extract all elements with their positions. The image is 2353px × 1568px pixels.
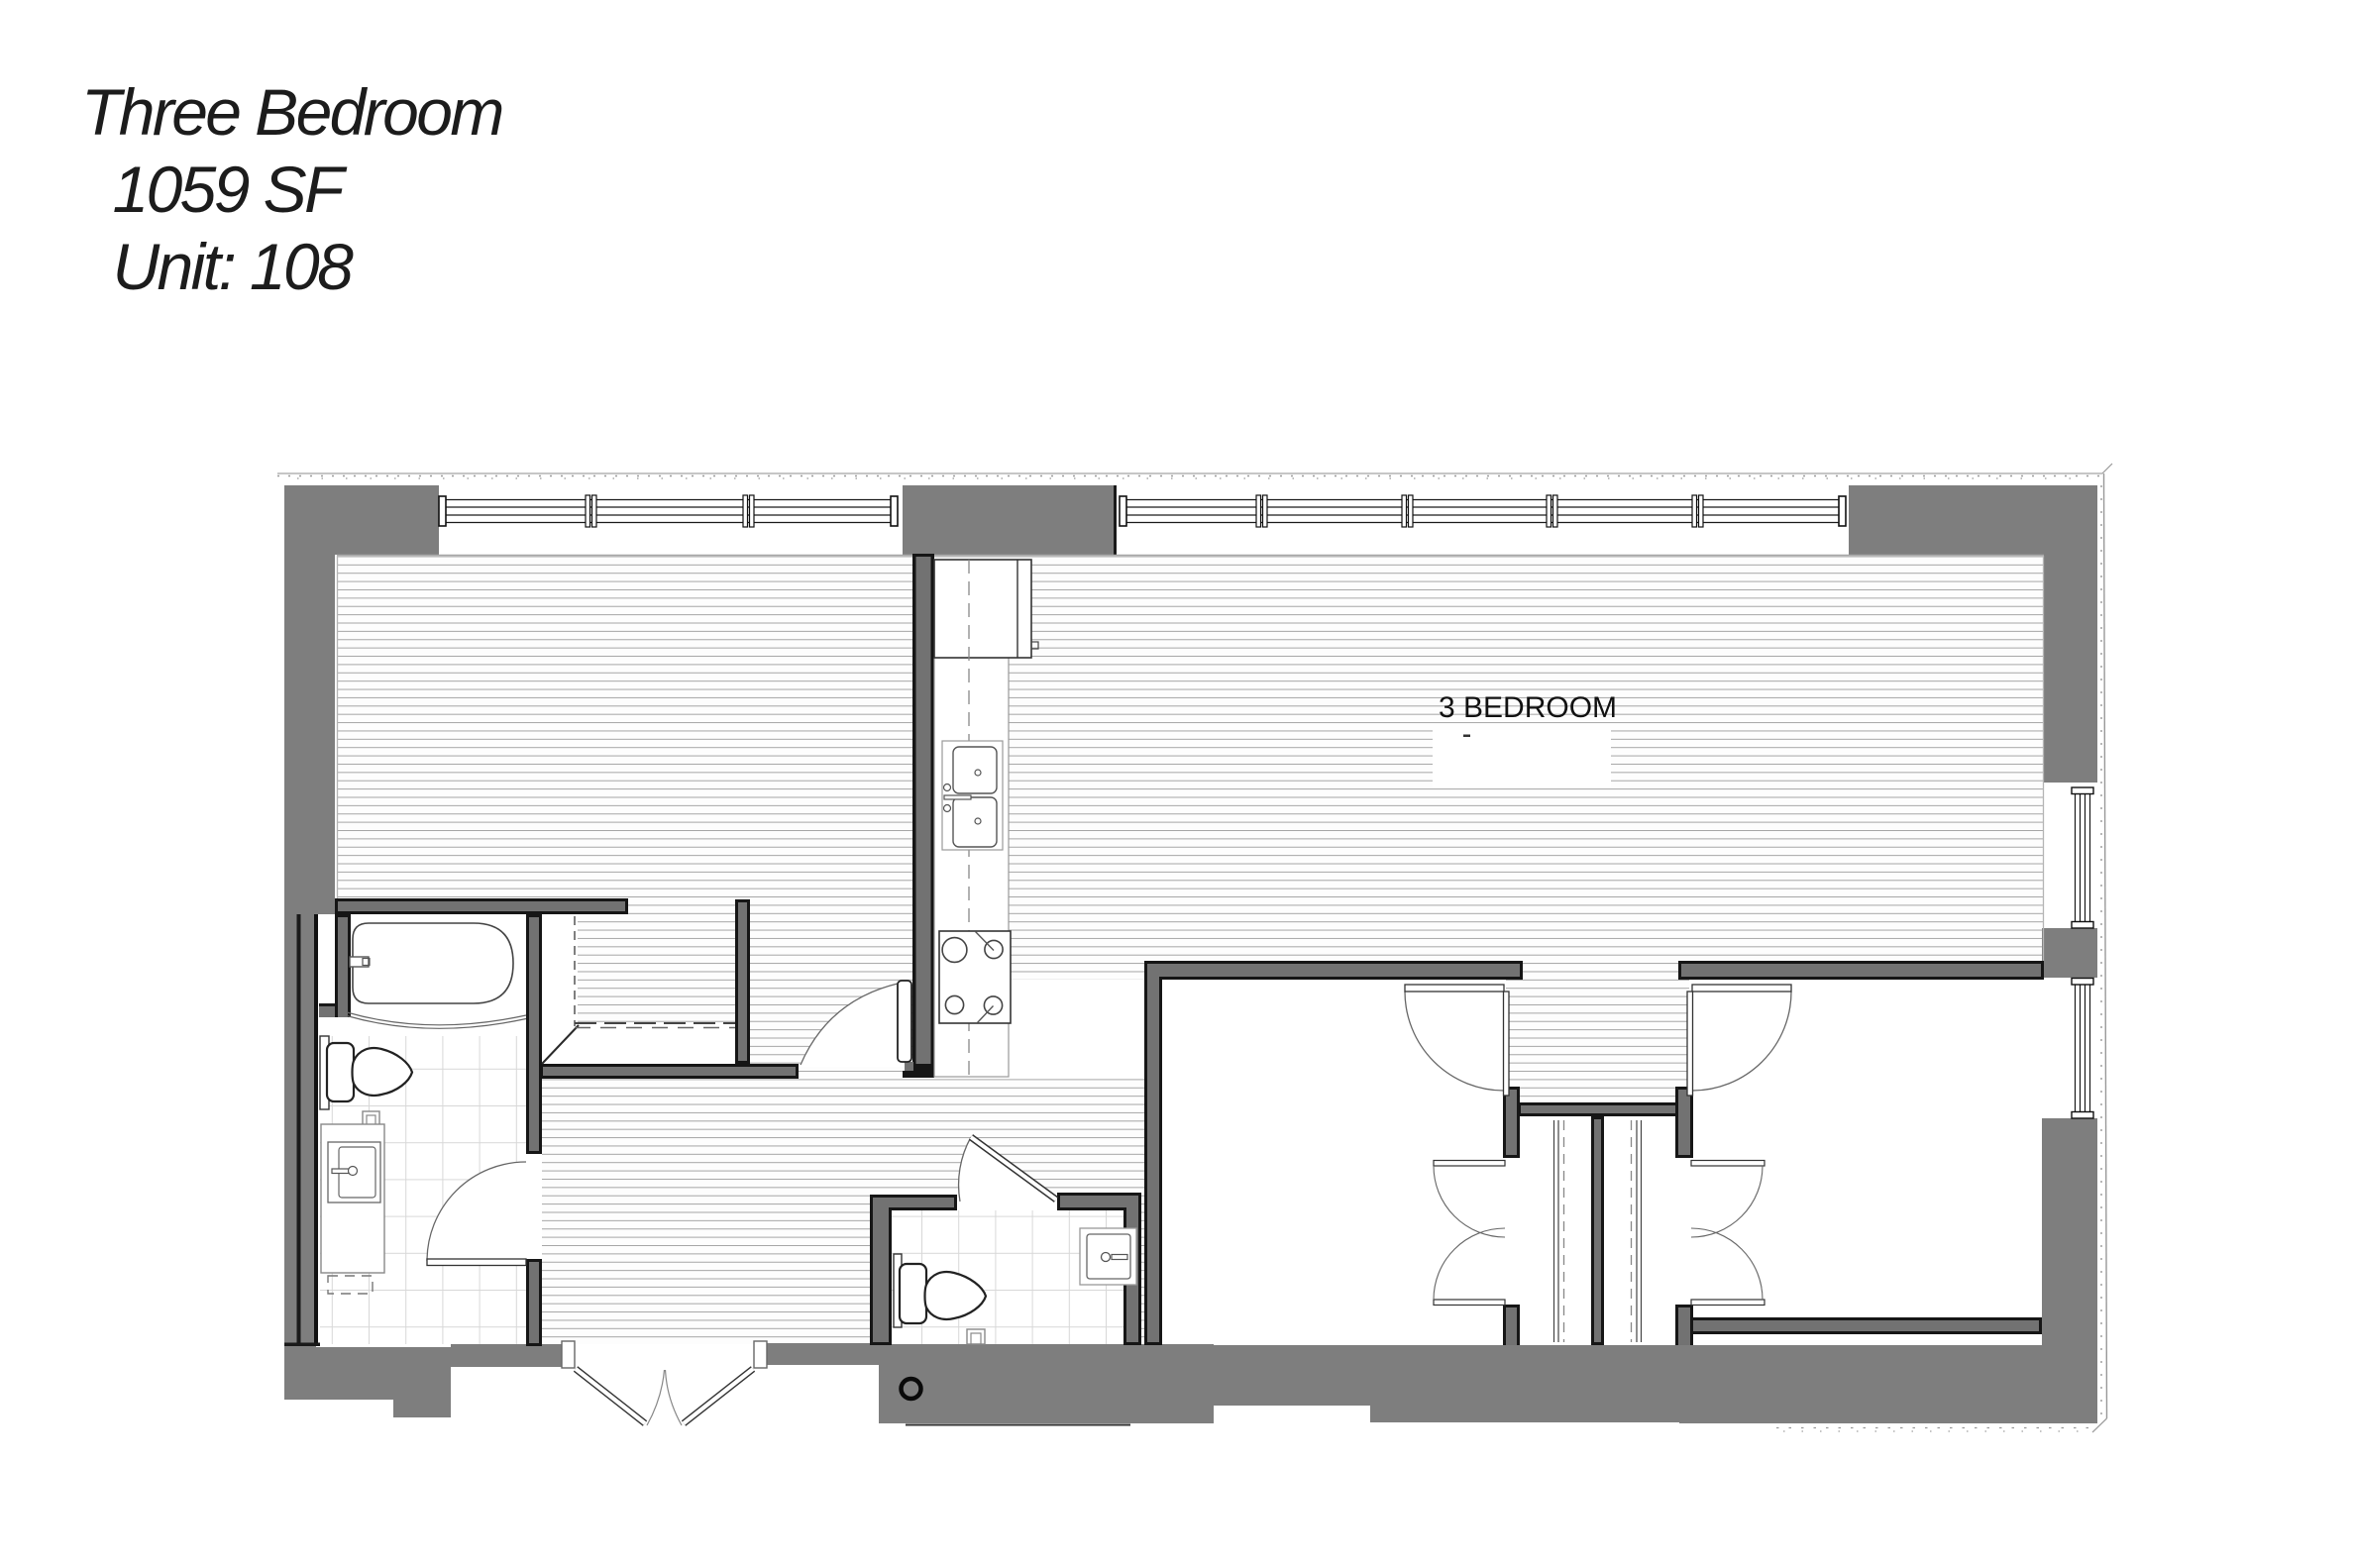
svg-text:3 BEDROOM: 3 BEDROOM	[1439, 691, 1617, 724]
